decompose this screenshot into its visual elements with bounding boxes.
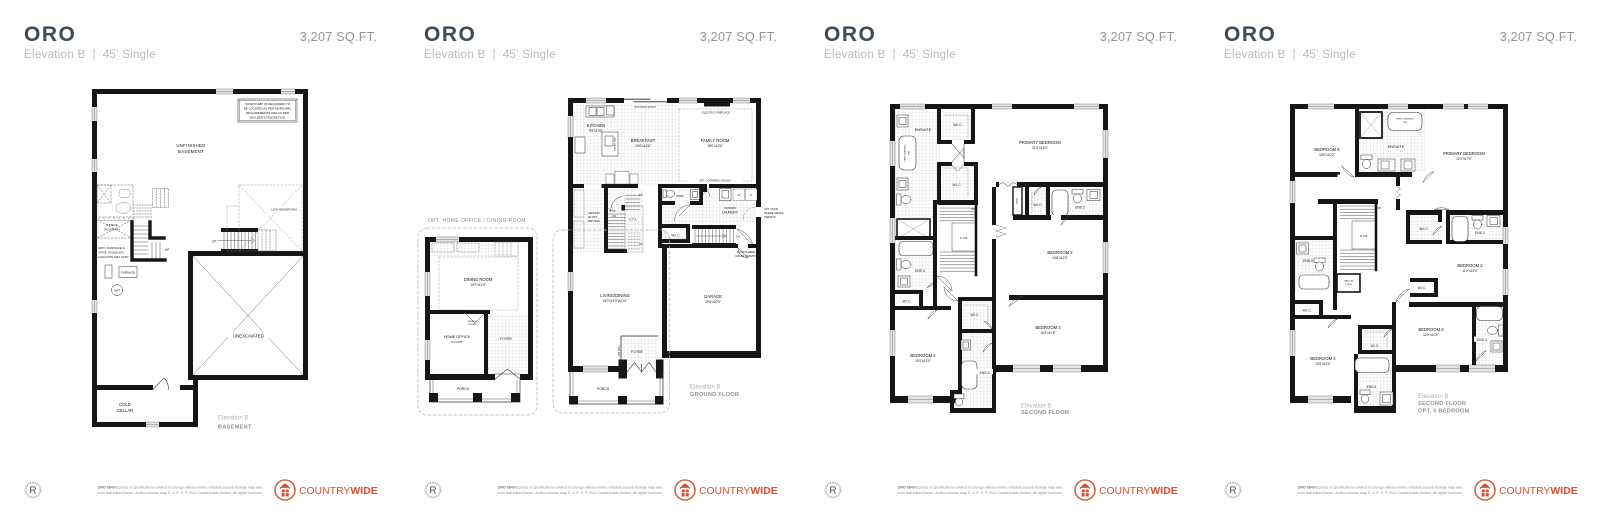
svg-text:W.I.C.: W.I.C.: [1419, 227, 1428, 231]
svg-text:21'0"x13'0": 21'0"x13'0": [1032, 146, 1048, 150]
svg-text:BEDROOM 3: BEDROOM 3: [1035, 325, 1061, 330]
svg-text:SECOND FLOOR: SECOND FLOOR: [1418, 401, 1466, 407]
svg-text:ORO: ORO: [24, 23, 76, 46]
svg-text:D: D: [750, 193, 752, 197]
svg-text:BREAK. BAR: BREAK. BAR: [614, 137, 617, 151]
svg-text:TUB: TUB: [1403, 122, 1408, 124]
svg-text:FREE STANDING: FREE STANDING: [1396, 118, 1414, 121]
svg-text:DOORS: DOORS: [468, 324, 477, 326]
svg-text:UP: UP: [212, 240, 216, 244]
svg-text:UP: UP: [613, 210, 617, 213]
svg-text:DN: DN: [736, 235, 740, 239]
svg-text:LAUNDRY: LAUNDRY: [722, 211, 739, 215]
svg-text:BEDROOM 2: BEDROOM 2: [1457, 263, 1483, 268]
svg-text:ROUGH-IN: ROUGH-IN: [104, 228, 119, 232]
svg-text:OPT. COFFERED CEILING: OPT. COFFERED CEILING: [699, 179, 731, 183]
svg-text:G.T.A.: G.T.A.: [629, 218, 638, 222]
svg-text:DN: DN: [1378, 206, 1382, 210]
svg-text:HWT: HWT: [114, 288, 120, 292]
svg-text:from that stated herein. Artis: from that stated herein. Artists concept…: [898, 491, 1063, 495]
svg-text:FAMILY ROOM: FAMILY ROOM: [701, 138, 730, 143]
svg-text:19'4"x20'0": 19'4"x20'0": [705, 300, 721, 304]
svg-text:R: R: [429, 486, 436, 497]
svg-text:Elevation B: Elevation B: [690, 385, 720, 391]
svg-text:8'0" PATIO DOOR: 8'0" PATIO DOOR: [635, 105, 656, 109]
svg-text:Elevation B | 45' Single: Elevation B | 45' Single: [424, 49, 556, 61]
svg-text:10'5"x10'2": 10'5"x10'2": [1319, 153, 1335, 157]
svg-text:ENSUITE: ENSUITE: [1388, 145, 1405, 149]
svg-text:Elevation B: Elevation B: [218, 416, 248, 422]
svg-text:14'6"x12'0": 14'6"x12'0": [1052, 256, 1068, 260]
svg-text:FOYER: FOYER: [500, 337, 512, 341]
svg-text:FOYER: FOYER: [631, 350, 643, 354]
svg-text:ENS.3: ENS.3: [980, 371, 990, 375]
svg-text:OPT. DOOR: OPT. DOOR: [764, 207, 778, 211]
svg-text:REQUIREMENTS AND AS PER: REQUIREMENTS AND AS PER: [246, 111, 290, 115]
svg-text:16'4"x11'6": 16'4"x11'6": [1040, 331, 1055, 335]
svg-text:15'0"x12'0": 15'0"x12'0": [915, 359, 931, 363]
svg-text:OPT. HOME OFFICE / DINING ROOM: OPT. HOME OFFICE / DINING ROOM: [428, 218, 526, 224]
svg-text:12'0"x17'0": 12'0"x17'0": [1456, 157, 1472, 161]
svg-text:SUMP PUMP (IF REQUIRED) TO: SUMP PUMP (IF REQUIRED) TO: [245, 102, 291, 106]
svg-text:ENS.5: ENS.5: [1303, 259, 1313, 263]
svg-text:HWT / FURNACE &: HWT / FURNACE &: [98, 246, 125, 250]
svg-text:LOW HEADROOM: LOW HEADROOM: [271, 208, 297, 212]
svg-text:9'1"x9'8": 9'1"x9'8": [451, 340, 462, 344]
svg-text:ENS.2: ENS.2: [1075, 206, 1085, 210]
svg-text:UNFINISHED: UNFINISHED: [176, 143, 205, 148]
svg-text:GARAGE: GARAGE: [704, 294, 722, 299]
svg-text:R: R: [829, 486, 836, 497]
svg-text:BEDROOM 4: BEDROOM 4: [1310, 356, 1336, 361]
svg-text:DN: DN: [639, 193, 643, 197]
svg-text:LINEN: LINEN: [1017, 197, 1019, 204]
svg-text:OPT. 5 BEDROOM: OPT. 5 BEDROOM: [1418, 408, 1470, 414]
svg-text:ORO 5840-2 prices & specificat: ORO 5840-2 prices & specifications subje…: [498, 486, 663, 490]
svg-text:W.I.C.: W.I.C.: [1371, 344, 1380, 348]
svg-text:BEDROOM 4: BEDROOM 4: [910, 353, 936, 358]
svg-text:ORO: ORO: [824, 23, 876, 46]
svg-text:W.I.C.: W.I.C.: [953, 123, 962, 127]
svg-text:from that stated herein. Artis: from that stated herein. Artists concept…: [498, 491, 663, 495]
svg-text:FRENCH: FRENCH: [467, 321, 477, 323]
svg-text:DN: DN: [613, 215, 617, 218]
svg-text:3,207 SQ.FT.: 3,207 SQ.FT.: [700, 30, 777, 44]
svg-text:UNEXCAVATED: UNEXCAVATED: [233, 334, 263, 339]
svg-text:BEDROOM 2: BEDROOM 2: [1047, 250, 1073, 255]
svg-text:LIVING/DINING: LIVING/DINING: [600, 293, 630, 298]
svg-text:COUNTRYWIDE: COUNTRYWIDE: [699, 486, 778, 497]
svg-text:W.I.C.: W.I.C.: [903, 300, 912, 304]
svg-text:WALK-IN: WALK-IN: [1344, 280, 1353, 283]
svg-text:SERVERY: SERVERY: [588, 211, 601, 215]
svg-text:W/ OPT.: W/ OPT.: [588, 215, 598, 219]
svg-text:ORO: ORO: [1224, 23, 1276, 46]
svg-text:PORCH: PORCH: [457, 387, 470, 391]
svg-text:W.I.C.: W.I.C.: [1033, 203, 1042, 207]
svg-text:TUB: TUB: [909, 150, 911, 155]
svg-text:COUNTRYWIDE: COUNTRYWIDE: [1099, 486, 1178, 497]
svg-text:W.I.C.: W.I.C.: [952, 183, 961, 187]
svg-text:BUILDER'S DISCRETION: BUILDER'S DISCRETION: [250, 115, 285, 119]
svg-text:R: R: [1229, 486, 1236, 497]
svg-text:ENS.4: ENS.4: [1367, 385, 1377, 389]
svg-text:KITCHEN: KITCHEN: [587, 123, 605, 128]
svg-text:10'2"x11'2": 10'2"x11'2": [470, 283, 485, 287]
svg-text:W.I.C.: W.I.C.: [1303, 309, 1312, 313]
svg-text:PERMITS: PERMITS: [764, 215, 776, 219]
svg-text:WHERE GRADE: WHERE GRADE: [764, 211, 784, 215]
svg-text:10'0"x12'0": 10'0"x12'0": [1315, 362, 1331, 366]
svg-text:G.T.B.: G.T.B.: [960, 236, 969, 240]
svg-text:Elevation B | 45' Single: Elevation B | 45' Single: [824, 49, 956, 61]
svg-text:SUNKEN: SUNKEN: [724, 206, 736, 210]
svg-text:GRADE PERMITS: GRADE PERMITS: [735, 254, 757, 258]
svg-text:ORO: ORO: [424, 23, 476, 46]
svg-text:Elevation B | 45' Single: Elevation B | 45' Single: [1224, 49, 1356, 61]
svg-text:SECOND FLOOR: SECOND FLOOR: [1021, 410, 1069, 416]
svg-text:UP: UP: [165, 248, 169, 252]
svg-text:ENS.3: ENS.3: [1477, 338, 1487, 342]
svg-text:18'0"(13'0")x21'0": 18'0"(13'0")x21'0": [603, 299, 628, 303]
svg-text:ORO 5840-2 prices & specificat: ORO 5840-2 prices & specifications subje…: [898, 486, 1063, 490]
svg-text:BASEMENT: BASEMENT: [218, 425, 252, 431]
svg-text:ENS.2: ENS.2: [1475, 231, 1485, 235]
svg-text:3 PCE. ROUGH-IN: 3 PCE. ROUGH-IN: [98, 251, 124, 255]
svg-text:3,207 SQ.FT.: 3,207 SQ.FT.: [1100, 30, 1177, 44]
svg-text:W.I.C.: W.I.C.: [671, 234, 680, 238]
svg-text:3,207 SQ.FT.: 3,207 SQ.FT.: [1500, 30, 1577, 44]
svg-text:R: R: [29, 486, 36, 497]
svg-text:W.I.C.: W.I.C.: [971, 313, 980, 317]
svg-text:Elevation B: Elevation B: [1021, 404, 1051, 410]
svg-text:BE LOCATED AS PER MUNICIPAL: BE LOCATED AS PER MUNICIPAL: [244, 106, 292, 110]
svg-text:HOME OFFICE: HOME OFFICE: [444, 335, 471, 339]
svg-text:18'0"x13'0": 18'0"x13'0": [707, 144, 723, 148]
svg-text:LOCATION MAY VARY: LOCATION MAY VARY: [98, 255, 129, 259]
svg-text:from that stated herein. Artis: from that stated herein. Artists concept…: [1298, 491, 1463, 495]
svg-text:COUNTRYWIDE: COUNTRYWIDE: [1499, 486, 1578, 497]
svg-text:W: W: [737, 193, 740, 197]
svg-text:G.T.B.: G.T.B.: [1360, 234, 1369, 238]
svg-text:BASEMENT: BASEMENT: [178, 149, 204, 154]
svg-text:FURNACE: FURNACE: [121, 271, 135, 275]
svg-text:PRIMARY BEDROOM: PRIMARY BEDROOM: [1019, 140, 1061, 145]
svg-text:3,207 SQ.FT.: 3,207 SQ.FT.: [300, 30, 377, 44]
svg-text:PORCH: PORCH: [597, 387, 610, 391]
svg-text:FREE STANDING: FREE STANDING: [904, 144, 907, 161]
svg-text:ELECTRIC FIREPLACE: ELECTRIC FIREPLACE: [702, 111, 730, 115]
svg-text:ENS.4: ENS.4: [915, 269, 925, 273]
svg-text:DINING ROOM: DINING ROOM: [464, 277, 493, 282]
svg-text:12'0"x10'0": 12'0"x10'0": [1423, 333, 1439, 337]
svg-text:BEDROOM 3: BEDROOM 3: [1418, 327, 1444, 332]
svg-text:BEDROOM 5: BEDROOM 5: [1314, 147, 1340, 152]
svg-text:11'0"x10'0": 11'0"x10'0": [1462, 269, 1477, 273]
svg-text:ORO 5840-2 prices & specificat: ORO 5840-2 prices & specifications subje…: [98, 486, 263, 490]
svg-text:PWD: PWD: [677, 194, 685, 198]
svg-text:LOW WALL: LOW WALL: [618, 344, 621, 357]
svg-text:WET BAR: WET BAR: [588, 219, 600, 223]
svg-text:from that stated herein. Artis: from that stated herein. Artists concept…: [98, 491, 263, 495]
svg-text:9'9"x13'0": 9'9"x13'0": [589, 129, 603, 133]
svg-text:ORO 5840-2 prices & specificat: ORO 5840-2 prices & specifications subje…: [1298, 486, 1463, 490]
svg-text:3 PIECE: 3 PIECE: [106, 223, 118, 227]
svg-text:10'6"x13'0": 10'6"x13'0": [635, 144, 651, 148]
svg-text:CELLAR: CELLAR: [117, 408, 133, 413]
svg-text:DOOR WHERE: DOOR WHERE: [737, 250, 755, 254]
svg-text:PRIMARY BEDROOM: PRIMARY BEDROOM: [1443, 151, 1485, 156]
svg-text:DN: DN: [971, 207, 975, 211]
svg-text:COLD: COLD: [119, 402, 131, 407]
svg-text:GROUND FLOOR: GROUND FLOOR: [690, 392, 739, 398]
svg-text:LINEN: LINEN: [1345, 284, 1352, 286]
svg-text:UP: UP: [639, 242, 643, 246]
svg-text:W.I.C.: W.I.C.: [1418, 286, 1427, 290]
svg-text:BREAKFAST: BREAKFAST: [631, 138, 656, 143]
svg-text:Elevation B | 45' Single: Elevation B | 45' Single: [24, 49, 156, 61]
svg-text:COUNTRYWIDE: COUNTRYWIDE: [299, 486, 378, 497]
svg-text:Elevation B: Elevation B: [1418, 394, 1448, 400]
svg-text:ENSUITE: ENSUITE: [915, 128, 932, 132]
